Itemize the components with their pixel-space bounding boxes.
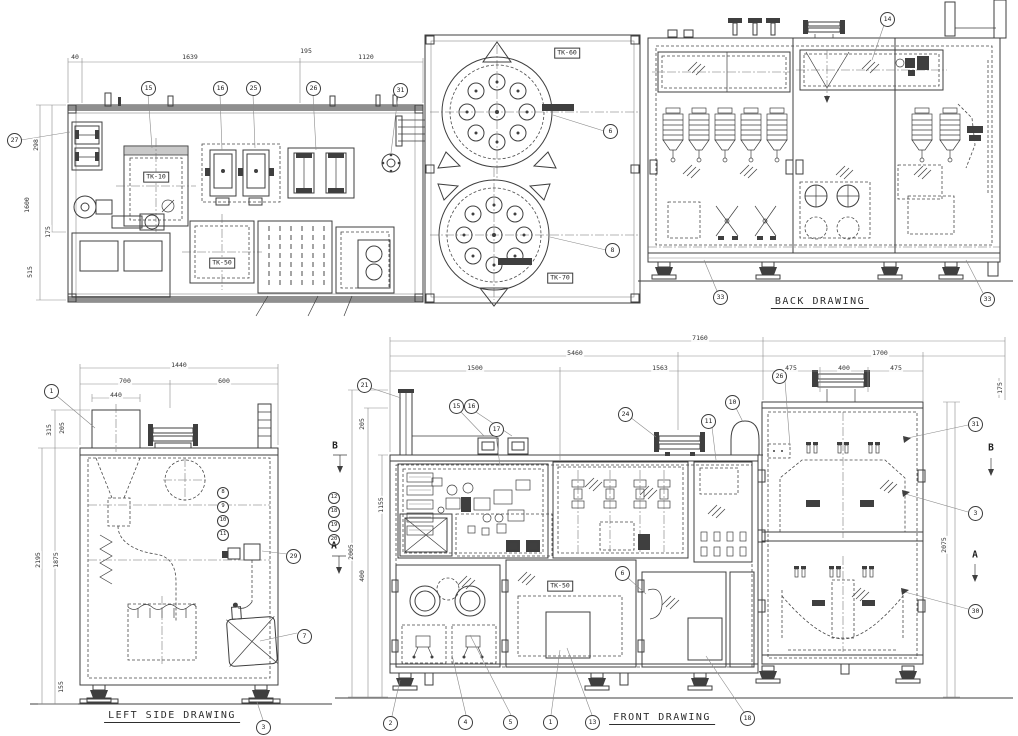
left-side-view-linework	[30, 364, 332, 720]
balloon-callout-10: 10	[217, 515, 229, 527]
balloon-callout-16: 16	[213, 81, 228, 96]
dimension-text: 298	[33, 138, 40, 152]
balloon-callout-17: 17	[489, 422, 504, 437]
balloon-callout-33: 33	[713, 290, 728, 305]
balloon-callout-10: 10	[725, 395, 740, 410]
plan-view-linework	[21, 58, 423, 316]
balloon-callout-29: 29	[286, 549, 301, 564]
front-drawing-label: FRONT DRAWING	[609, 712, 715, 725]
dimension-text: 1120	[357, 54, 375, 61]
dimension-text: 1700	[871, 350, 889, 357]
dimension-text: 7160	[691, 335, 709, 342]
balloon-callout-7: 7	[297, 629, 312, 644]
dimension-text: 1440	[170, 362, 188, 369]
dimension-text: 2195	[35, 551, 42, 569]
section-marker-B: B	[988, 443, 994, 454]
balloon-callout-15: 15	[449, 399, 464, 414]
dimension-text: 1500	[466, 365, 484, 372]
dimension-text: 475	[784, 365, 798, 372]
balloon-callout-6: 6	[603, 124, 618, 139]
back-view-linework	[638, 0, 1013, 293]
dimension-text: 475	[889, 365, 903, 372]
front-view-linework	[332, 337, 1013, 716]
tag-tk50-plan: TK-50	[209, 258, 235, 269]
dimension-text: 515	[27, 265, 34, 279]
balloon-callout-6: 6	[615, 566, 630, 581]
dimension-text: 205	[359, 417, 366, 431]
dimension-text: 600	[217, 378, 231, 385]
balloon-callout-24: 24	[618, 407, 633, 422]
balloon-callout-14: 14	[880, 12, 895, 27]
dimension-text: 400	[837, 365, 851, 372]
balloon-callout-8: 8	[605, 243, 620, 258]
balloon-callout-21: 21	[357, 378, 372, 393]
dimension-text: 205	[59, 421, 66, 435]
balloon-callout-15: 15	[141, 81, 156, 96]
balloon-callout-30: 30	[968, 604, 983, 619]
balloon-callout-18: 18	[740, 711, 755, 726]
tag-tk70: TK-70	[547, 273, 573, 284]
dimension-text: 40	[70, 54, 80, 61]
section-marker-A: A	[331, 541, 337, 552]
balloon-callout-16: 16	[464, 399, 479, 414]
blueprint-canvas: BACK DRAWING LEFT SIDE DRAWING FRONT DRA…	[0, 0, 1018, 736]
balloon-callout-9: 9	[217, 501, 229, 513]
dimension-text: 440	[109, 392, 123, 399]
dimension-text: 175	[45, 225, 52, 239]
plan-circle-panel-linework	[396, 35, 640, 306]
drawing-linework	[0, 0, 1018, 736]
balloon-callout-3: 3	[968, 506, 983, 521]
balloon-callout-5: 5	[503, 715, 518, 730]
balloon-callout-2: 2	[383, 716, 398, 731]
tag-tk50-front: TK-50	[547, 581, 573, 592]
balloon-callout-26: 26	[306, 81, 321, 96]
dimension-text: 1639	[181, 54, 199, 61]
dimension-text: 175	[997, 381, 1004, 395]
balloon-callout-12: 12	[328, 492, 340, 504]
section-marker-B: B	[332, 441, 338, 452]
dimension-text: 700	[118, 378, 132, 385]
balloon-callout-13: 13	[585, 715, 600, 730]
dimension-text: 2075	[941, 536, 948, 554]
balloon-callout-18: 18	[328, 506, 340, 518]
left-side-drawing-label: LEFT SIDE DRAWING	[104, 710, 240, 723]
balloon-callout-31: 31	[968, 417, 983, 432]
dimension-text: 195	[299, 48, 313, 55]
balloon-callout-11: 11	[701, 414, 716, 429]
dimension-text: 5460	[566, 350, 584, 357]
balloon-callout-1: 1	[44, 384, 59, 399]
balloon-callout-31: 31	[393, 83, 408, 98]
dimension-text: 1600	[24, 196, 31, 214]
dimension-text: 2005	[348, 543, 355, 561]
section-marker-A: A	[972, 550, 978, 561]
dimension-text: 1155	[378, 496, 385, 514]
balloon-callout-11: 11	[217, 529, 229, 541]
balloon-callout-27: 27	[7, 133, 22, 148]
balloon-callout-3: 3	[256, 720, 271, 735]
dimension-text: 1875	[53, 551, 60, 569]
dimension-text: 400	[359, 569, 366, 583]
balloon-callout-8: 8	[217, 487, 229, 499]
balloon-callout-25: 25	[246, 81, 261, 96]
tag-tk60: TK-60	[554, 48, 580, 59]
balloon-callout-33: 33	[980, 292, 995, 307]
balloon-callout-1: 1	[543, 715, 558, 730]
back-drawing-label: BACK DRAWING	[771, 296, 869, 309]
balloon-callout-19: 19	[328, 520, 340, 532]
balloon-callout-4: 4	[458, 715, 473, 730]
tag-tk10: TK-10	[143, 172, 169, 183]
dimension-text: 1563	[651, 365, 669, 372]
dimension-text: 155	[58, 680, 65, 694]
dimension-text: 315	[46, 423, 53, 437]
